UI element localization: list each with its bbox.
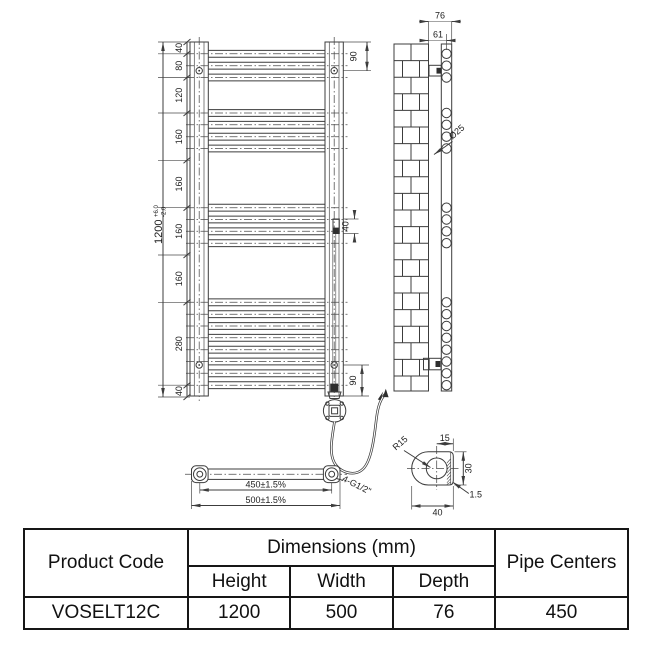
cell-width: 500 (290, 597, 392, 629)
front-view: 90 40 90 408012016016016016028040 1200 +… (153, 37, 389, 473)
side-tube-circle (442, 357, 451, 366)
chain-dim-label: 280 (174, 336, 184, 351)
hatch-line (447, 476, 451, 480)
side-tube-circle (442, 333, 451, 342)
section-hatch (447, 459, 451, 484)
left-rail (190, 37, 208, 401)
hatch-line (447, 472, 451, 476)
side-tube-circle (442, 310, 451, 319)
side-tube-circle (442, 73, 451, 82)
side-tube-circle (442, 61, 451, 70)
side-tube-circle (442, 215, 451, 224)
side-bracket-bottom (424, 358, 442, 370)
chain-dim-label: 80 (174, 61, 184, 71)
header-width: Width (290, 566, 392, 597)
heating-element (323, 384, 345, 422)
dim-tube-offset: 61 (422, 30, 454, 51)
side-bracket-top (429, 65, 441, 76)
header-pipe-centers: Pipe Centers (495, 529, 628, 597)
dim-overall-height: 1200 +6.0 -2.0 (153, 42, 168, 397)
dim-label: 30 (464, 463, 474, 473)
dim-pipe-centers: 450±1.5% (200, 480, 332, 494)
dim-label: 40 (432, 508, 442, 518)
side-tube-circle (442, 108, 451, 117)
header-dimensions-group: Dimensions (mm) (188, 529, 495, 566)
side-tube-circle (442, 345, 451, 354)
chain-dim-label: 160 (174, 224, 184, 239)
dim-label: 76 (435, 11, 445, 21)
side-tube-circle (442, 239, 451, 248)
table-row: VOSELT12C 1200 500 76 450 (24, 597, 628, 629)
cell-product-code: VOSELT12C (24, 597, 188, 629)
dim-section-width: 40 (412, 486, 454, 518)
hatch-line (447, 459, 451, 463)
side-tube-circle (442, 369, 451, 378)
dim-center-to-face: 15 (437, 433, 454, 451)
tolerance-minus: -2.0 (162, 206, 168, 217)
chain-dim-label: 120 (174, 88, 184, 103)
cell-height: 1200 (188, 597, 290, 629)
dim-label: 500±1.5% (245, 495, 285, 505)
header-height: Height (188, 566, 290, 597)
dim-label: Ø25 (447, 123, 466, 142)
side-tube-circle (442, 227, 451, 236)
detail-view: R15 15 30 1.5 40 (391, 433, 482, 518)
side-view: 76 61 Ø25 (394, 11, 466, 392)
chain-dim-label: 160 (174, 176, 184, 191)
dim-label: 450±1.5% (245, 480, 285, 490)
side-tube-circle (442, 298, 451, 307)
header-product-code: Product Code (24, 529, 188, 597)
tube-rungs (186, 50, 348, 388)
dim-label: 90 (349, 51, 359, 61)
side-rail (441, 44, 451, 391)
spec-table: Product Code Dimensions (mm) Pipe Center… (23, 528, 629, 630)
brick-pattern (394, 44, 429, 391)
chain-dim-label: 40 (174, 43, 184, 53)
hatch-line (447, 462, 451, 466)
chain-dim-label: 160 (174, 271, 184, 286)
dim-wall-thickness: 1.5 (453, 482, 483, 500)
header-depth: Depth (393, 566, 495, 597)
side-tube-circle (442, 321, 451, 330)
chain-dim-label: 160 (174, 129, 184, 144)
dim-label: 4-G1/2" (341, 473, 373, 496)
plan-left-cap (192, 466, 209, 483)
technical-drawing-sheet: 90 40 90 408012016016016016028040 1200 +… (0, 0, 650, 650)
side-tube-sections (442, 49, 451, 390)
side-tube-circle (442, 120, 451, 129)
dim-label: 1.5 (470, 490, 483, 500)
cable-plug-arrow-icon (383, 389, 389, 397)
side-tube-circle (442, 381, 451, 390)
cell-depth: 76 (393, 597, 495, 629)
dim-bracket-top: 90 (344, 42, 372, 71)
overall-height-label: 1200 (153, 220, 165, 244)
tolerance-plus: +6.0 (154, 204, 160, 217)
chain-dim-label: 40 (174, 386, 184, 396)
dim-radius: R15 (391, 434, 431, 468)
cell-pipe-centers: 450 (495, 597, 628, 629)
side-tube-circle (442, 49, 451, 58)
dim-label: 61 (433, 30, 443, 40)
dim-label: 40 (341, 221, 351, 231)
side-tube-circle (442, 203, 451, 212)
dim-label: R15 (391, 434, 410, 452)
plan-right-cap (323, 466, 340, 483)
thread-callout: 4-G1/2" (337, 473, 373, 496)
dim-bracket-bottom: 90 (344, 365, 370, 396)
dim-label: 90 (348, 375, 358, 385)
dim-label: 15 (440, 433, 450, 443)
